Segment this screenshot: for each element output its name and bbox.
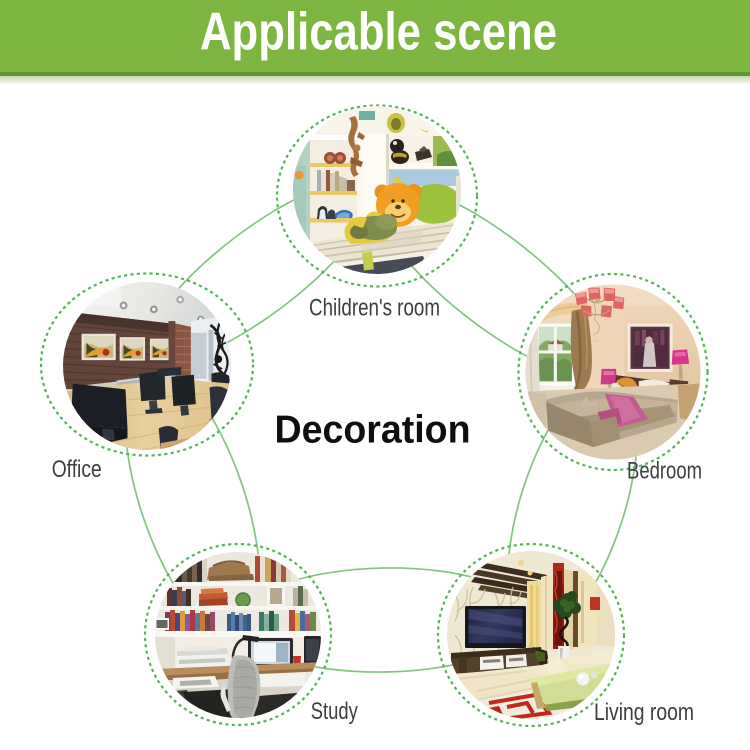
- svg-text:Living room: Living room: [594, 699, 694, 726]
- svg-text:Bedroom: Bedroom: [627, 458, 702, 485]
- svg-text:Study: Study: [311, 698, 358, 725]
- svg-text:Decoration: Decoration: [275, 408, 471, 451]
- svg-text:Children's room: Children's room: [309, 295, 440, 322]
- svg-text:Office: Office: [52, 456, 102, 483]
- svg-text:Applicable scene: Applicable scene: [200, 3, 557, 62]
